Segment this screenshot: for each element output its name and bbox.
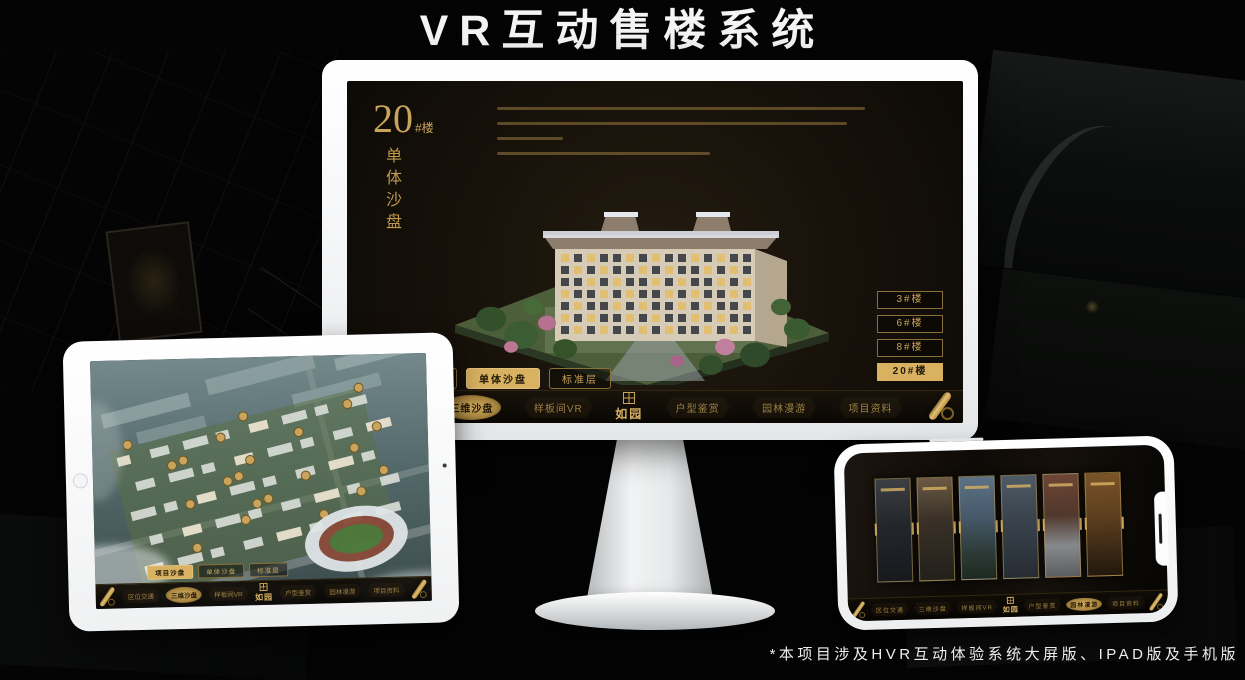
floor-button[interactable]: 20#楼: [877, 363, 943, 381]
nav-item[interactable]: 项目资料: [839, 397, 903, 418]
scroll-icon[interactable]: [925, 392, 955, 422]
phone-side-button: [929, 438, 983, 443]
background-aerial-photo: [967, 50, 1245, 298]
brand-logo[interactable]: 如园: [1002, 597, 1018, 615]
description-line: [497, 137, 563, 140]
gallery-card-dusk-tower[interactable]: [958, 475, 997, 580]
phone-notch: [1154, 491, 1169, 565]
scroll-icon[interactable]: [852, 600, 867, 620]
page-title: VR互动售楼系统: [0, 0, 1245, 54]
brand-name: 如园: [255, 592, 273, 603]
seal-icon: [260, 583, 268, 591]
monitor-stand-base: [535, 592, 775, 630]
building-number: 20: [373, 96, 413, 141]
brand-logo[interactable]: 如园: [615, 392, 643, 422]
description-line: [497, 152, 710, 155]
description-line: [497, 107, 865, 110]
main-nav-bar: 区位交通三维沙盘样板间VR如园户型鉴赏园林漫游项目资料: [848, 590, 1169, 622]
mode-tab-item[interactable]: 标准层: [549, 368, 611, 389]
mode-tab-active[interactable]: 单体沙盘: [466, 368, 540, 389]
nav-item[interactable]: 园林漫游: [752, 397, 816, 418]
nav-item[interactable]: 户型鉴赏: [666, 397, 730, 418]
nav-item[interactable]: 三维沙盘: [914, 601, 952, 615]
description-line: [497, 122, 847, 125]
building-model-render[interactable]: [425, 157, 855, 385]
footnote: *本项目涉及HVR互动体验系统大屏版、IPAD版及手机版: [770, 643, 1239, 664]
building-number-suffix: #楼: [415, 121, 434, 135]
seal-icon: [1007, 597, 1014, 604]
nav-item[interactable]: 园林漫游: [1066, 597, 1102, 611]
tablet-screen: 项目沙盘单体沙盘标准层 区位交通三维沙盘样板间VR如园户型鉴赏园林漫游项目资料: [90, 353, 432, 609]
phone-frame: 区位交通三维沙盘样板间VR如园户型鉴赏园林漫游项目资料: [833, 435, 1178, 630]
nav-item[interactable]: 户型鉴赏: [1023, 598, 1061, 612]
brand-name: 如园: [615, 405, 643, 422]
gallery-card-wood-interior[interactable]: [916, 476, 955, 581]
mode-tab-active[interactable]: 项目沙盘: [147, 565, 193, 580]
tablet-camera: [443, 463, 447, 467]
floor-button-group: 3#楼6#楼8#楼20#楼: [877, 291, 943, 381]
nav-item[interactable]: 项目资料: [367, 583, 405, 598]
nav-item[interactable]: 区位交通: [871, 602, 909, 616]
nav-item[interactable]: 样板间VR: [208, 586, 249, 601]
nav-item[interactable]: 户型鉴赏: [279, 585, 317, 600]
mode-tab-item[interactable]: 单体沙盘: [198, 563, 244, 578]
seal-icon: [623, 392, 635, 404]
tablet-frame: 项目沙盘单体沙盘标准层 区位交通三维沙盘样板间VR如园户型鉴赏园林漫游项目资料: [63, 332, 460, 631]
nav-item[interactable]: 园林漫游: [323, 584, 361, 599]
section-subtitle-vertical: 单体沙盘: [379, 147, 403, 251]
gallery-card-warm-shelf[interactable]: [1084, 472, 1123, 577]
gallery-card-autumn-court[interactable]: [1042, 473, 1081, 578]
gallery-card-courtyard[interactable]: [874, 478, 913, 583]
scroll-icon[interactable]: [99, 586, 116, 608]
brand-logo[interactable]: 如园: [255, 583, 273, 603]
nav-item[interactable]: 样板间VR: [524, 397, 593, 418]
phone-screen: 区位交通三维沙盘样板间VR如园户型鉴赏园林漫游项目资料: [844, 445, 1169, 622]
monitor-stand-neck: [587, 438, 713, 598]
floor-button[interactable]: 8#楼: [877, 339, 943, 357]
scroll-icon[interactable]: [1150, 592, 1165, 612]
nav-item[interactable]: 项目资料: [1107, 596, 1145, 610]
scene-gallery: [844, 471, 1153, 584]
scroll-icon[interactable]: [411, 578, 428, 600]
background-ui-collage: [985, 269, 1245, 450]
nav-item[interactable]: 区位交通: [122, 589, 160, 604]
floor-button[interactable]: 6#楼: [877, 315, 943, 333]
nav-item[interactable]: 样板间VR: [956, 600, 998, 614]
gallery-card-facade[interactable]: [1000, 474, 1039, 579]
background-plaque: [105, 221, 202, 342]
brand-name: 如园: [1003, 605, 1019, 615]
mode-tab-item[interactable]: 标准层: [249, 562, 288, 577]
nav-item[interactable]: 三维沙盘: [166, 586, 202, 603]
tablet-home-button[interactable]: [73, 473, 88, 488]
floor-button[interactable]: 3#楼: [877, 291, 943, 309]
